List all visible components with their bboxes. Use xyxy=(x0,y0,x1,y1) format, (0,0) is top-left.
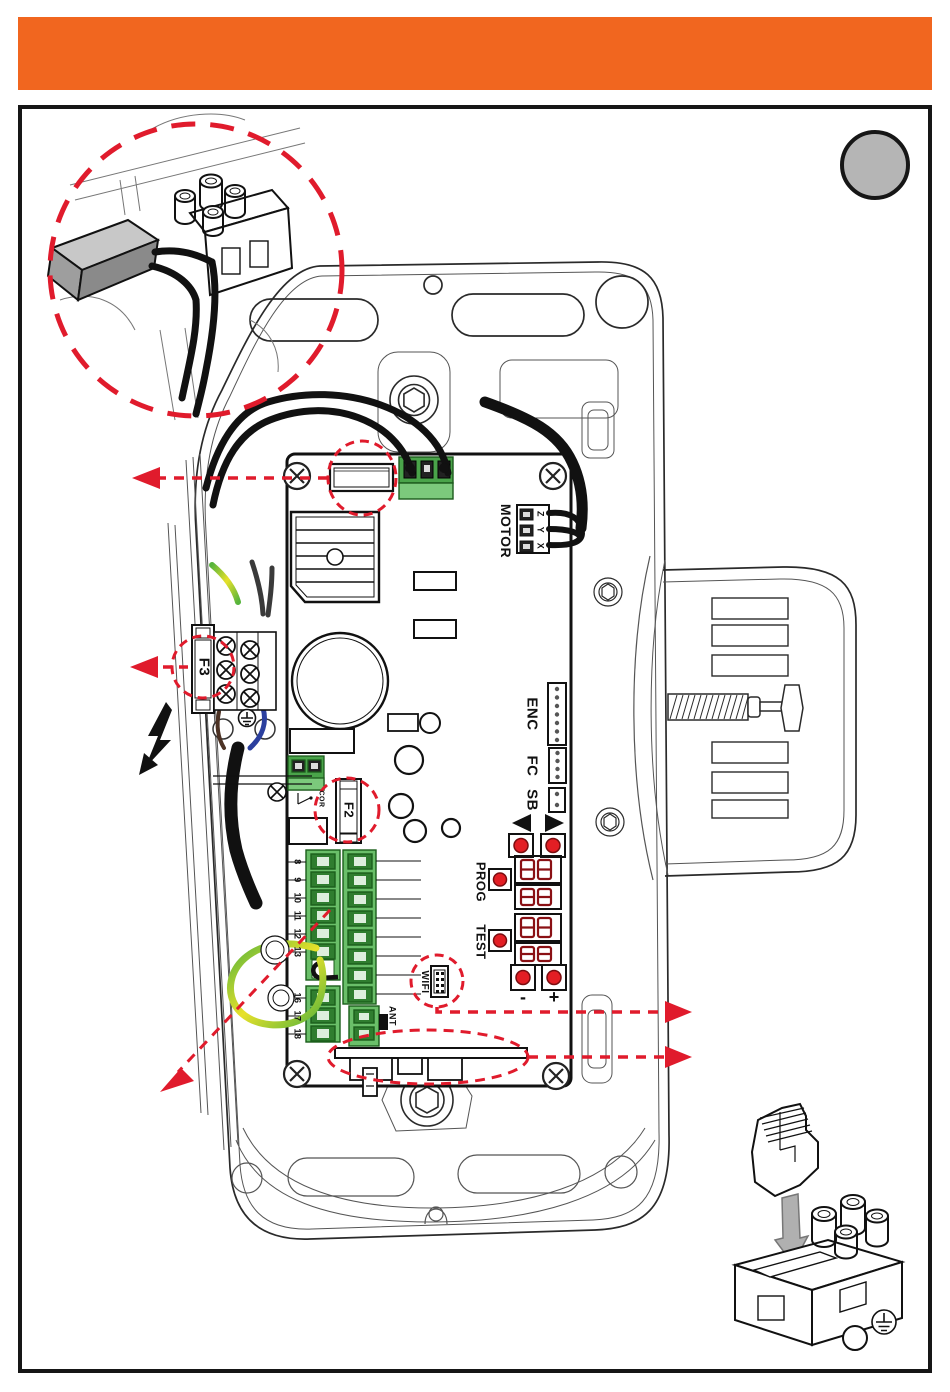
ant-label: ANT xyxy=(388,1006,397,1026)
motor-pin-x-label: X xyxy=(536,543,545,550)
manual-page: MOTOR Z Y X ENC FC SB PROG TEST WIFI F2 … xyxy=(0,0,950,1392)
adjustment-screw xyxy=(668,685,803,731)
sb-connector xyxy=(549,788,565,812)
test-button xyxy=(489,930,511,951)
terminal-number: 11 xyxy=(293,911,302,922)
accessory-connector xyxy=(330,464,393,491)
terminal-number: 18 xyxy=(293,1028,302,1039)
enc-label: ENC xyxy=(525,697,540,730)
terminal-number: 13 xyxy=(293,946,302,957)
high-voltage-icon xyxy=(139,702,172,775)
wifi-connector xyxy=(431,966,448,997)
prog-label: PROG xyxy=(475,862,488,902)
plus-label: + xyxy=(549,988,560,1006)
enc-connector xyxy=(548,683,566,745)
f3-label: F3 xyxy=(197,658,212,677)
terminal-number: 10 xyxy=(293,892,302,903)
antenna-terminal xyxy=(349,1006,379,1046)
ground-symbol-icon xyxy=(872,1310,896,1334)
prog-button xyxy=(489,869,511,890)
terminal-number: 12 xyxy=(293,928,302,939)
test-label: TEST xyxy=(475,924,488,959)
terminal-strip-right xyxy=(343,850,376,1004)
capacitor-body xyxy=(48,220,158,300)
fc-connector xyxy=(549,748,566,783)
wifi-label: WIFI xyxy=(419,970,429,993)
ground-wire-top xyxy=(212,565,238,602)
cor-terminal xyxy=(288,756,324,790)
gray-wire-top xyxy=(252,562,272,615)
capacitor-detail-view xyxy=(48,114,305,420)
motor-pin-z-label: Z xyxy=(536,511,545,517)
f2-label: F2 xyxy=(343,802,356,818)
motor-pin-y-label: Y xyxy=(536,527,545,534)
wiring-diagram xyxy=(0,0,950,1392)
fc-label: FC xyxy=(525,756,540,777)
minus-label: - xyxy=(520,988,526,1006)
terminal-number: 17 xyxy=(293,1010,302,1021)
terminal-insert-detail xyxy=(735,1104,902,1350)
hex-bolt-icon xyxy=(594,578,624,836)
mains-cable xyxy=(231,748,256,903)
terminal-number: 16 xyxy=(293,992,302,1003)
motor-label: MOTOR xyxy=(499,504,513,558)
cor-label: COR xyxy=(318,790,325,807)
terminal-number: 9 xyxy=(293,877,302,883)
sb-label: SB xyxy=(525,789,540,811)
terminal-number: 8 xyxy=(293,859,302,865)
ground-symbol-icon xyxy=(239,710,256,727)
